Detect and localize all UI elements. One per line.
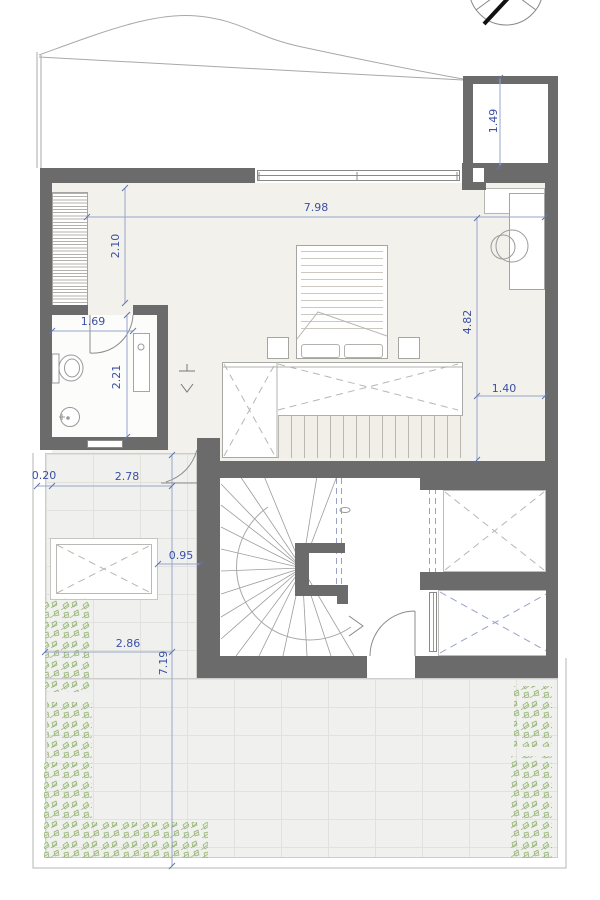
bathroom-window [87,440,123,448]
dim-skylight-gap: 0.95 [163,549,199,563]
pillow-right [344,344,383,358]
dim-bedroom-depth: 4.82 [461,304,475,340]
void-room-lower [438,590,552,656]
wall-shaft-top [463,76,558,84]
pillow-left [301,344,340,358]
open-door-leaf [429,592,437,652]
dim-parapet-width: 0.20 [26,469,62,483]
wall-right [545,183,558,461]
bedroom-window [257,170,460,181]
dim-terrace-top-width: 2.78 [109,470,145,484]
wall-stair-left [197,438,220,678]
wall-corner-stub [462,183,486,190]
wall-rooms-divider [420,572,548,590]
wall-shaft-right [548,76,558,168]
void-room-upper [443,490,546,572]
wall-bath-right [157,305,168,450]
desk [509,193,545,290]
wall-bath-top-a [40,305,88,315]
nightstand-left [267,337,289,359]
terrace-bottom-tiles [45,678,558,858]
stair-core-stub [337,585,348,604]
bathroom-vanity [133,333,150,392]
wall-rooms-top [420,461,558,490]
dim-terrace-width: 2.86 [110,637,146,651]
dim-closet-span: 2.10 [109,228,123,264]
stair-flight-below [278,415,463,458]
wall-bottom-a [197,656,367,678]
wall-opening [473,168,484,182]
bed-blanket [301,251,383,331]
wall-top-left [40,168,255,183]
bed [296,245,388,359]
wall-bottom-b [415,656,558,678]
north-arrow-icon [469,0,543,25]
roof-outline [37,16,463,168]
dim-shaft-depth: 1.49 [487,103,501,139]
floor-plan: 1.49 7.98 2.10 1.69 2.21 4.82 1.40 0.20 … [0,0,600,900]
shaft-room-floor [473,84,548,163]
dim-bath-depth: 2.21 [110,359,124,395]
wall-right-lower [546,461,558,678]
wall-shaft-left [463,78,473,168]
dim-bath-width: 1.69 [75,315,111,329]
nightstand-right [398,337,420,359]
wardrobe [52,192,88,307]
terrace-skylight-frame [56,544,152,594]
wall-stair-top [220,461,420,478]
dim-bedroom-width: 7.98 [298,201,334,215]
dim-terrace-depth: 7.19 [157,645,171,681]
dim-void-to-wall: 1.40 [486,382,522,396]
